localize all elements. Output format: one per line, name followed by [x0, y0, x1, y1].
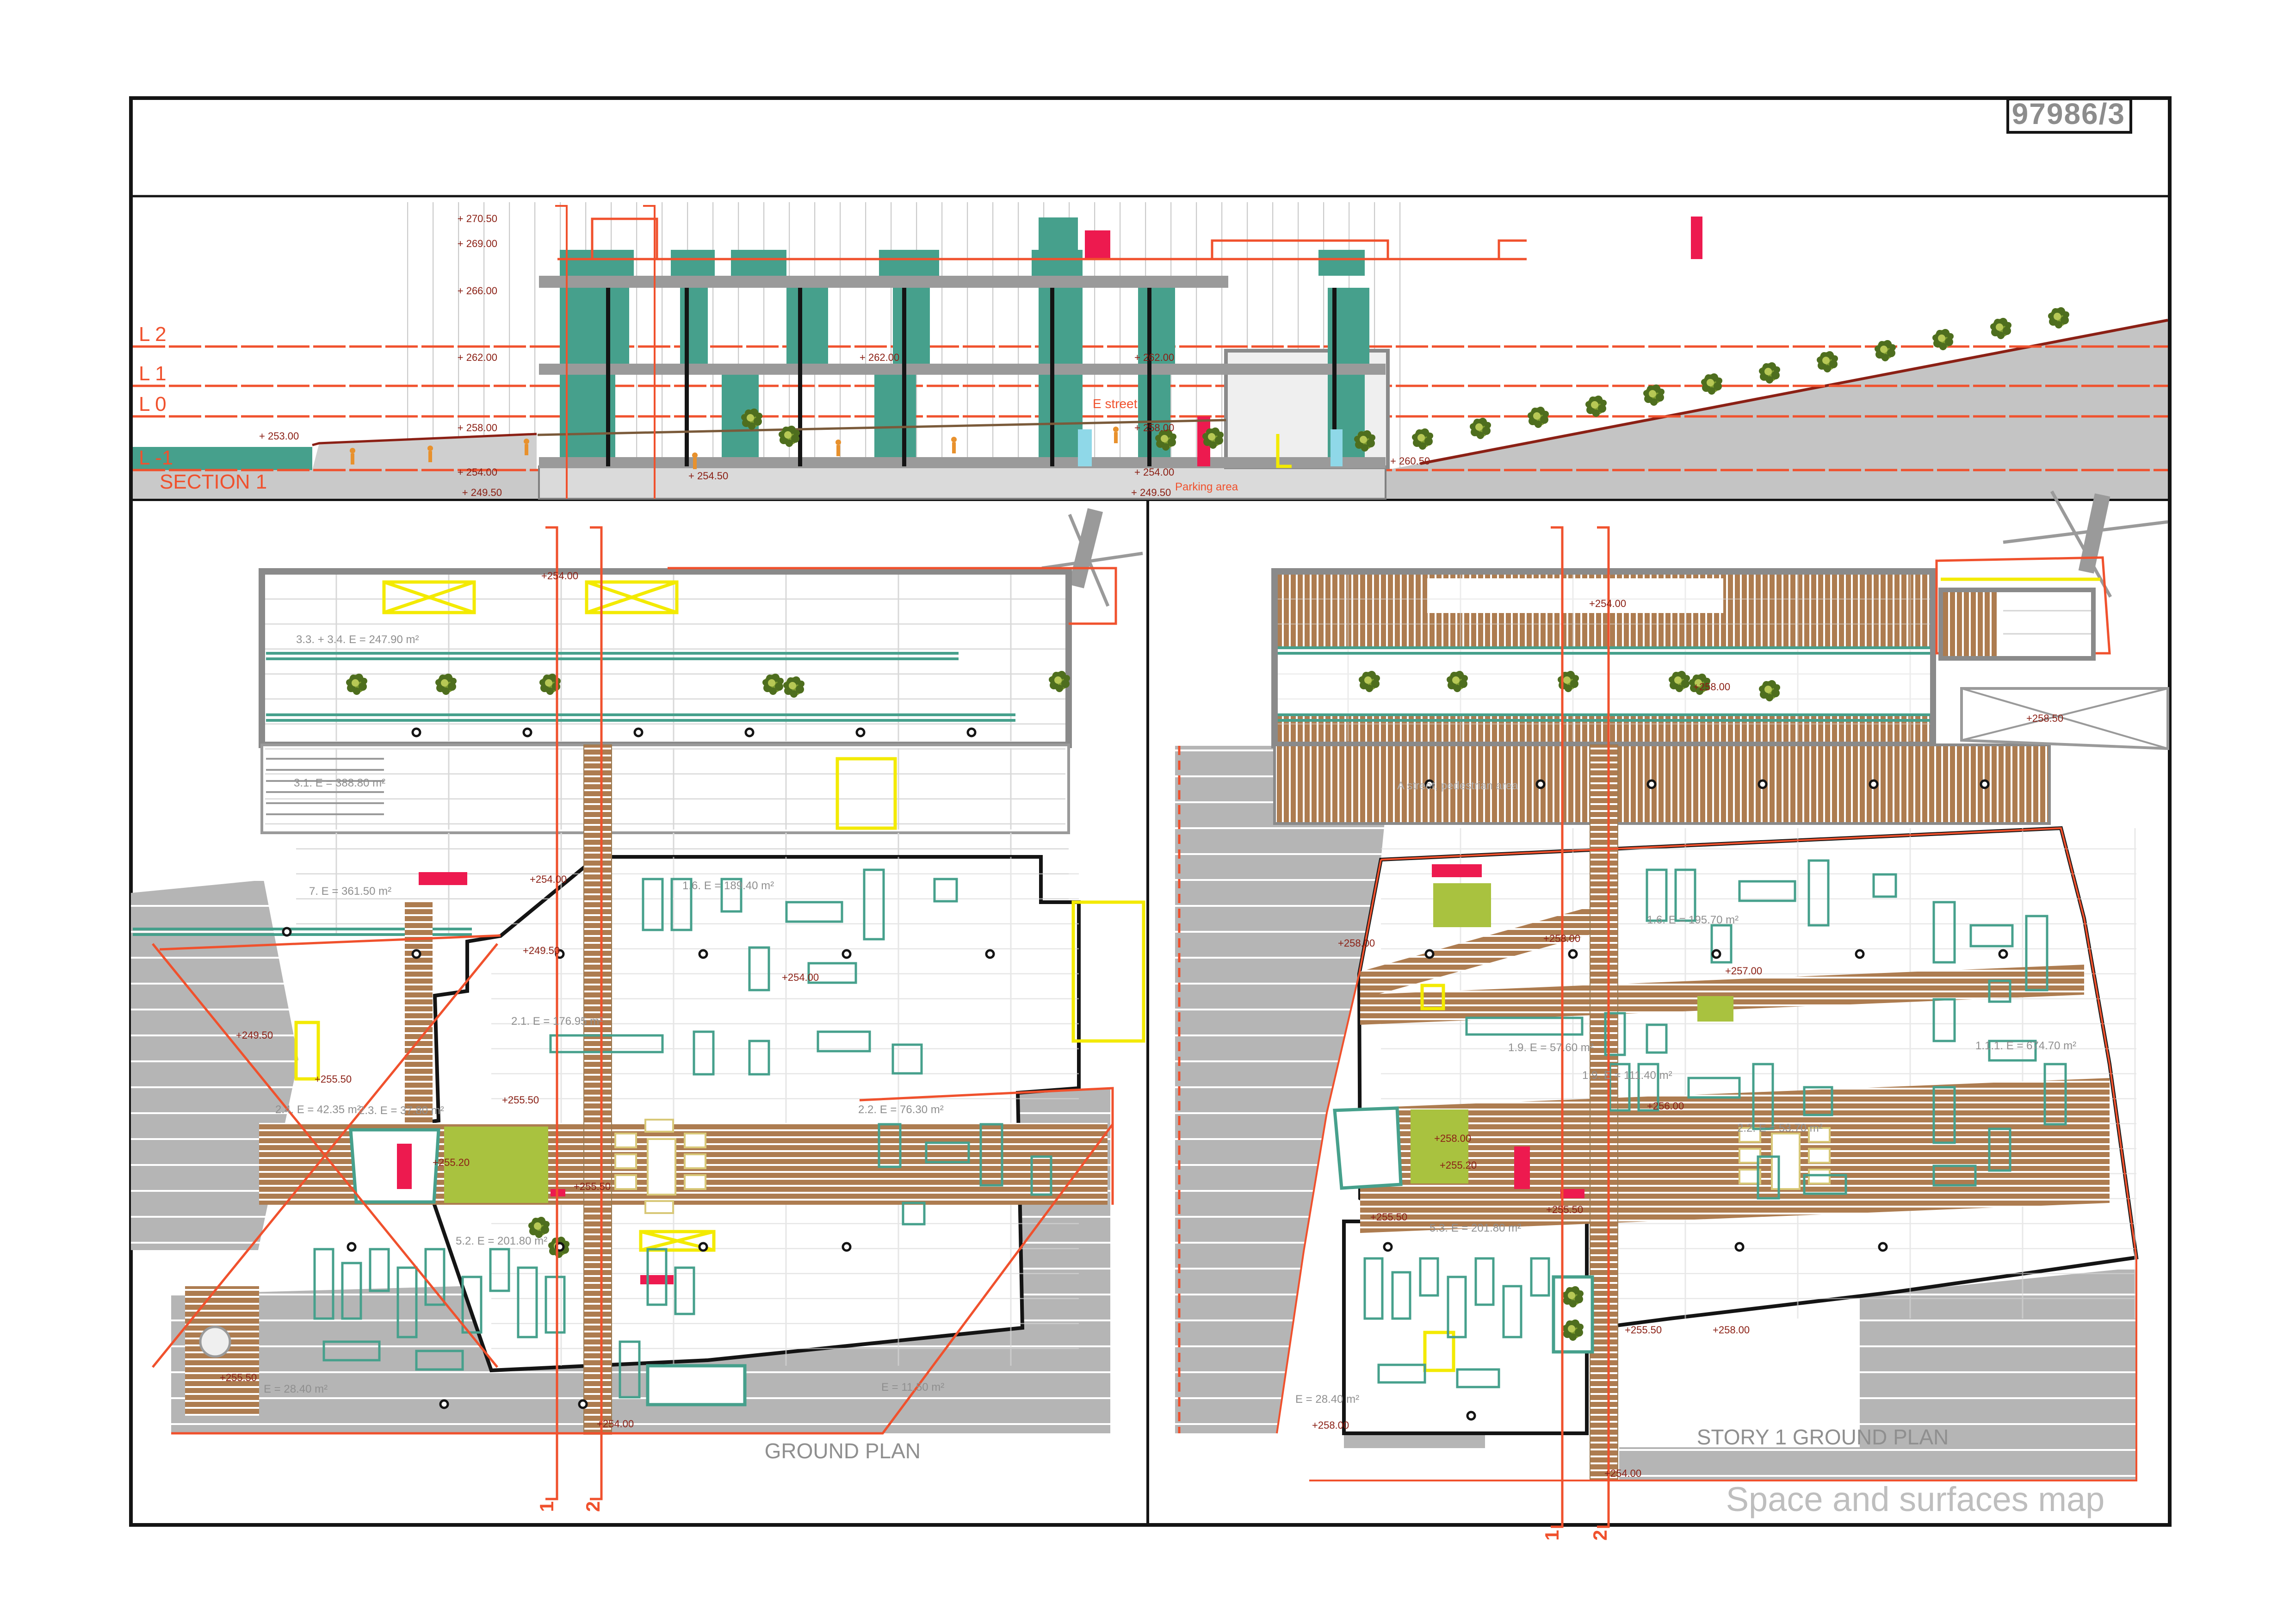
left-plan-title: GROUND PLAN: [765, 1439, 921, 1463]
right-plan-title: STORY 1 GROUND PLAN: [1697, 1425, 1949, 1449]
detached-panel: [1937, 558, 2110, 658]
level-label-l1: L 1: [139, 362, 167, 385]
lawn: [1411, 1109, 1468, 1183]
ground-plan: 1 2 3.3. + 3.4. E = 247.90 m² 3.1. E = 3…: [131, 508, 1144, 1512]
tree-icon: [1875, 340, 1896, 361]
svg-text:+258.00: +258.00: [1312, 1419, 1349, 1431]
svg-text:+ 270.50: + 270.50: [458, 213, 497, 224]
svg-text:+255.50: +255.50: [315, 1073, 352, 1085]
svg-text:1.9. E = 57.60 m²: 1.9. E = 57.60 m²: [1508, 1041, 1594, 1054]
envelope-marker: [1962, 688, 2168, 749]
deck-band-upper: [1275, 745, 2049, 824]
svg-text:1.1.1. E = 674.70 m²: 1.1.1. E = 674.70 m²: [1975, 1040, 2076, 1052]
tree-icon: [1528, 407, 1549, 428]
svg-text:2.3. E = 37.80 m²: 2.3. E = 37.80 m²: [359, 1104, 444, 1117]
svg-text:+256.00: +256.00: [1647, 1100, 1684, 1112]
tree-planter: [1553, 1277, 1592, 1352]
tree-icon: [1643, 384, 1665, 406]
svg-text:+254.00: +254.00: [541, 570, 578, 582]
svg-text:+258.00: +258.00: [1338, 937, 1375, 949]
svg-text:+ 266.00: + 266.00: [458, 285, 497, 297]
cut-marker-2: 2: [1589, 1530, 1611, 1541]
svg-text:+254.00: +254.00: [597, 1418, 634, 1430]
svg-text:+ 249.50: + 249.50: [462, 487, 502, 498]
tree-icon: [1759, 362, 1780, 384]
red-accent: [640, 1275, 674, 1284]
svg-text:1.9. E = 111.40 m²: 1.9. E = 111.40 m²: [1582, 1069, 1672, 1082]
svg-text:+255.20: +255.20: [1440, 1159, 1477, 1171]
svg-text:+ 254.00: + 254.00: [1134, 466, 1174, 478]
svg-text:+ 254.00: + 254.00: [458, 466, 497, 478]
svg-text:1.6. E = 189.40 m²: 1.6. E = 189.40 m²: [682, 880, 774, 892]
sheet-subtitle: Space and surfaces map: [1726, 1480, 2105, 1518]
svg-text:+255.50: +255.50: [1546, 1204, 1583, 1215]
section-title: SECTION 1: [160, 471, 267, 493]
svg-text:+258.00: +258.00: [1693, 681, 1730, 693]
tree-icon: [2048, 307, 2069, 328]
sheet-canvas: 97986/3 L 2 L 1 L 0 L -1 SECTION 1: [0, 0, 2296, 1623]
svg-text:7. E = 361.50 m²: 7. E = 361.50 m²: [309, 885, 391, 898]
round-plaza: [200, 1327, 230, 1357]
svg-text:2.2. E = 53.70 m²: 2.2. E = 53.70 m²: [1737, 1122, 1823, 1134]
red-accent: [1514, 1146, 1530, 1189]
svg-text:+ 260.50: + 260.50: [1390, 455, 1430, 467]
lawn: [1697, 996, 1733, 1022]
svg-text:+ 249.50: + 249.50: [1131, 487, 1171, 498]
svg-text:+255.50: +255.50: [220, 1372, 257, 1383]
svg-text:+ 258.00: + 258.00: [1134, 422, 1174, 434]
drawing-sheet: 97986/3 L 2 L 1 L 0 L -1 SECTION 1: [0, 0, 2296, 1623]
yellow-box: [296, 1022, 318, 1079]
parking-label: Parking area: [1175, 481, 1238, 493]
svg-text:+258.00: +258.00: [1434, 1133, 1471, 1144]
svg-text:+249.50: +249.50: [236, 1029, 273, 1041]
tree-icon: [1701, 373, 1722, 395]
svg-text:+ 254.50: + 254.50: [688, 470, 728, 482]
svg-text:E = 28.40 m²: E = 28.40 m²: [1295, 1393, 1359, 1406]
deck-stair: [405, 902, 433, 1124]
svg-text:5.3. E = 201.80 m²: 5.3. E = 201.80 m²: [1430, 1222, 1521, 1234]
svg-text:+ 269.00: + 269.00: [458, 238, 497, 249]
cut-marker-1: 1: [536, 1501, 557, 1512]
level-label-lm1: L -1: [139, 446, 173, 469]
glass-panel: [1078, 429, 1092, 466]
level-label-l0: L 0: [139, 393, 167, 415]
promenade-strip: [262, 568, 1116, 745]
svg-text:2.2. E = 76.30 m²: 2.2. E = 76.30 m²: [858, 1103, 944, 1116]
cut-marker-1: 1: [1541, 1530, 1563, 1541]
svg-text:+254.00: +254.00: [530, 873, 567, 885]
svg-text:+254.00: +254.00: [1589, 598, 1626, 609]
svg-text:+258.50: +258.50: [2026, 712, 2063, 724]
svg-text:2.1. E = 176.95 m²: 2.1. E = 176.95 m²: [511, 1015, 603, 1028]
red-accent: [1432, 864, 1482, 877]
svg-text:3.3. + 3.4. E = 247.90 m²: 3.3. + 3.4. E = 247.90 m²: [296, 633, 419, 646]
svg-text:+254.00: +254.00: [1604, 1468, 1641, 1479]
svg-text:+ 262.00: + 262.00: [1134, 352, 1174, 363]
level-label-l2: L 2: [139, 323, 167, 346]
svg-text:+258.00: +258.00: [1543, 933, 1580, 944]
lawn: [1433, 883, 1491, 927]
yellow-box: [1073, 902, 1144, 1041]
svg-text:+254.00: +254.00: [782, 972, 819, 983]
section-drawing: L 2 L 1 L 0 L -1 SECTION 1: [133, 202, 2168, 499]
red-accent: [1560, 1189, 1584, 1198]
table-cluster: [1739, 1128, 1830, 1189]
glass-panel: [1331, 429, 1343, 466]
svg-text:+ 262.00: + 262.00: [860, 352, 899, 363]
svg-text:+255.50: +255.50: [502, 1094, 539, 1106]
sheet-number: 97986/3: [2012, 97, 2125, 130]
svg-text:+249.50: +249.50: [523, 945, 560, 956]
story1-plan: 1 2 A street, pedestrian area 1.6. E = 1…: [1175, 491, 2168, 1541]
red-accent: [1691, 217, 1702, 259]
deck-corridor: [584, 745, 612, 1434]
pool: [351, 1130, 439, 1202]
svg-text:+255.50: +255.50: [1625, 1324, 1662, 1336]
tree-icon: [1470, 418, 1491, 439]
red-accent: [419, 872, 467, 885]
tree-icon: [1817, 351, 1838, 372]
street-label: E street: [1093, 396, 1138, 411]
tree-icon: [1585, 396, 1607, 417]
svg-text:+255.20: +255.20: [433, 1157, 470, 1168]
red-accent: [397, 1144, 412, 1189]
svg-text:E = 11.50 m²: E = 11.50 m²: [881, 1381, 944, 1394]
svg-text:+255.50: +255.50: [574, 1181, 611, 1192]
svg-text:+ 253.00: + 253.00: [259, 430, 299, 442]
red-accent: [1085, 230, 1110, 259]
street-label: A street, pedestrian area: [1397, 780, 1518, 792]
svg-text:+ 258.00: + 258.00: [458, 422, 497, 434]
cut-marker-2: 2: [582, 1501, 604, 1512]
pool: [1335, 1108, 1401, 1188]
svg-text:+255.50: +255.50: [1370, 1211, 1407, 1223]
svg-text:2.4. E = 42.35 m²: 2.4. E = 42.35 m²: [275, 1103, 361, 1116]
svg-text:+258.00: +258.00: [1713, 1324, 1750, 1336]
road-cross-marker: [2003, 491, 2168, 597]
svg-text:1.6. E = 195.70 m²: 1.6. E = 195.70 m²: [1647, 914, 1739, 926]
tree-icon: [1990, 318, 2011, 339]
svg-text:+257.00: +257.00: [1725, 965, 1762, 977]
svg-text:3.1. E = 388.80 m²: 3.1. E = 388.80 m²: [294, 777, 385, 789]
svg-text:+ 262.00: + 262.00: [458, 352, 497, 363]
deck-corridor: [1590, 745, 1618, 1481]
svg-text:5.2. E = 201.80 m²: 5.2. E = 201.80 m²: [456, 1235, 547, 1247]
svg-text:E = 28.40 m²: E = 28.40 m²: [264, 1383, 328, 1395]
kiosk-box: [648, 1366, 745, 1405]
